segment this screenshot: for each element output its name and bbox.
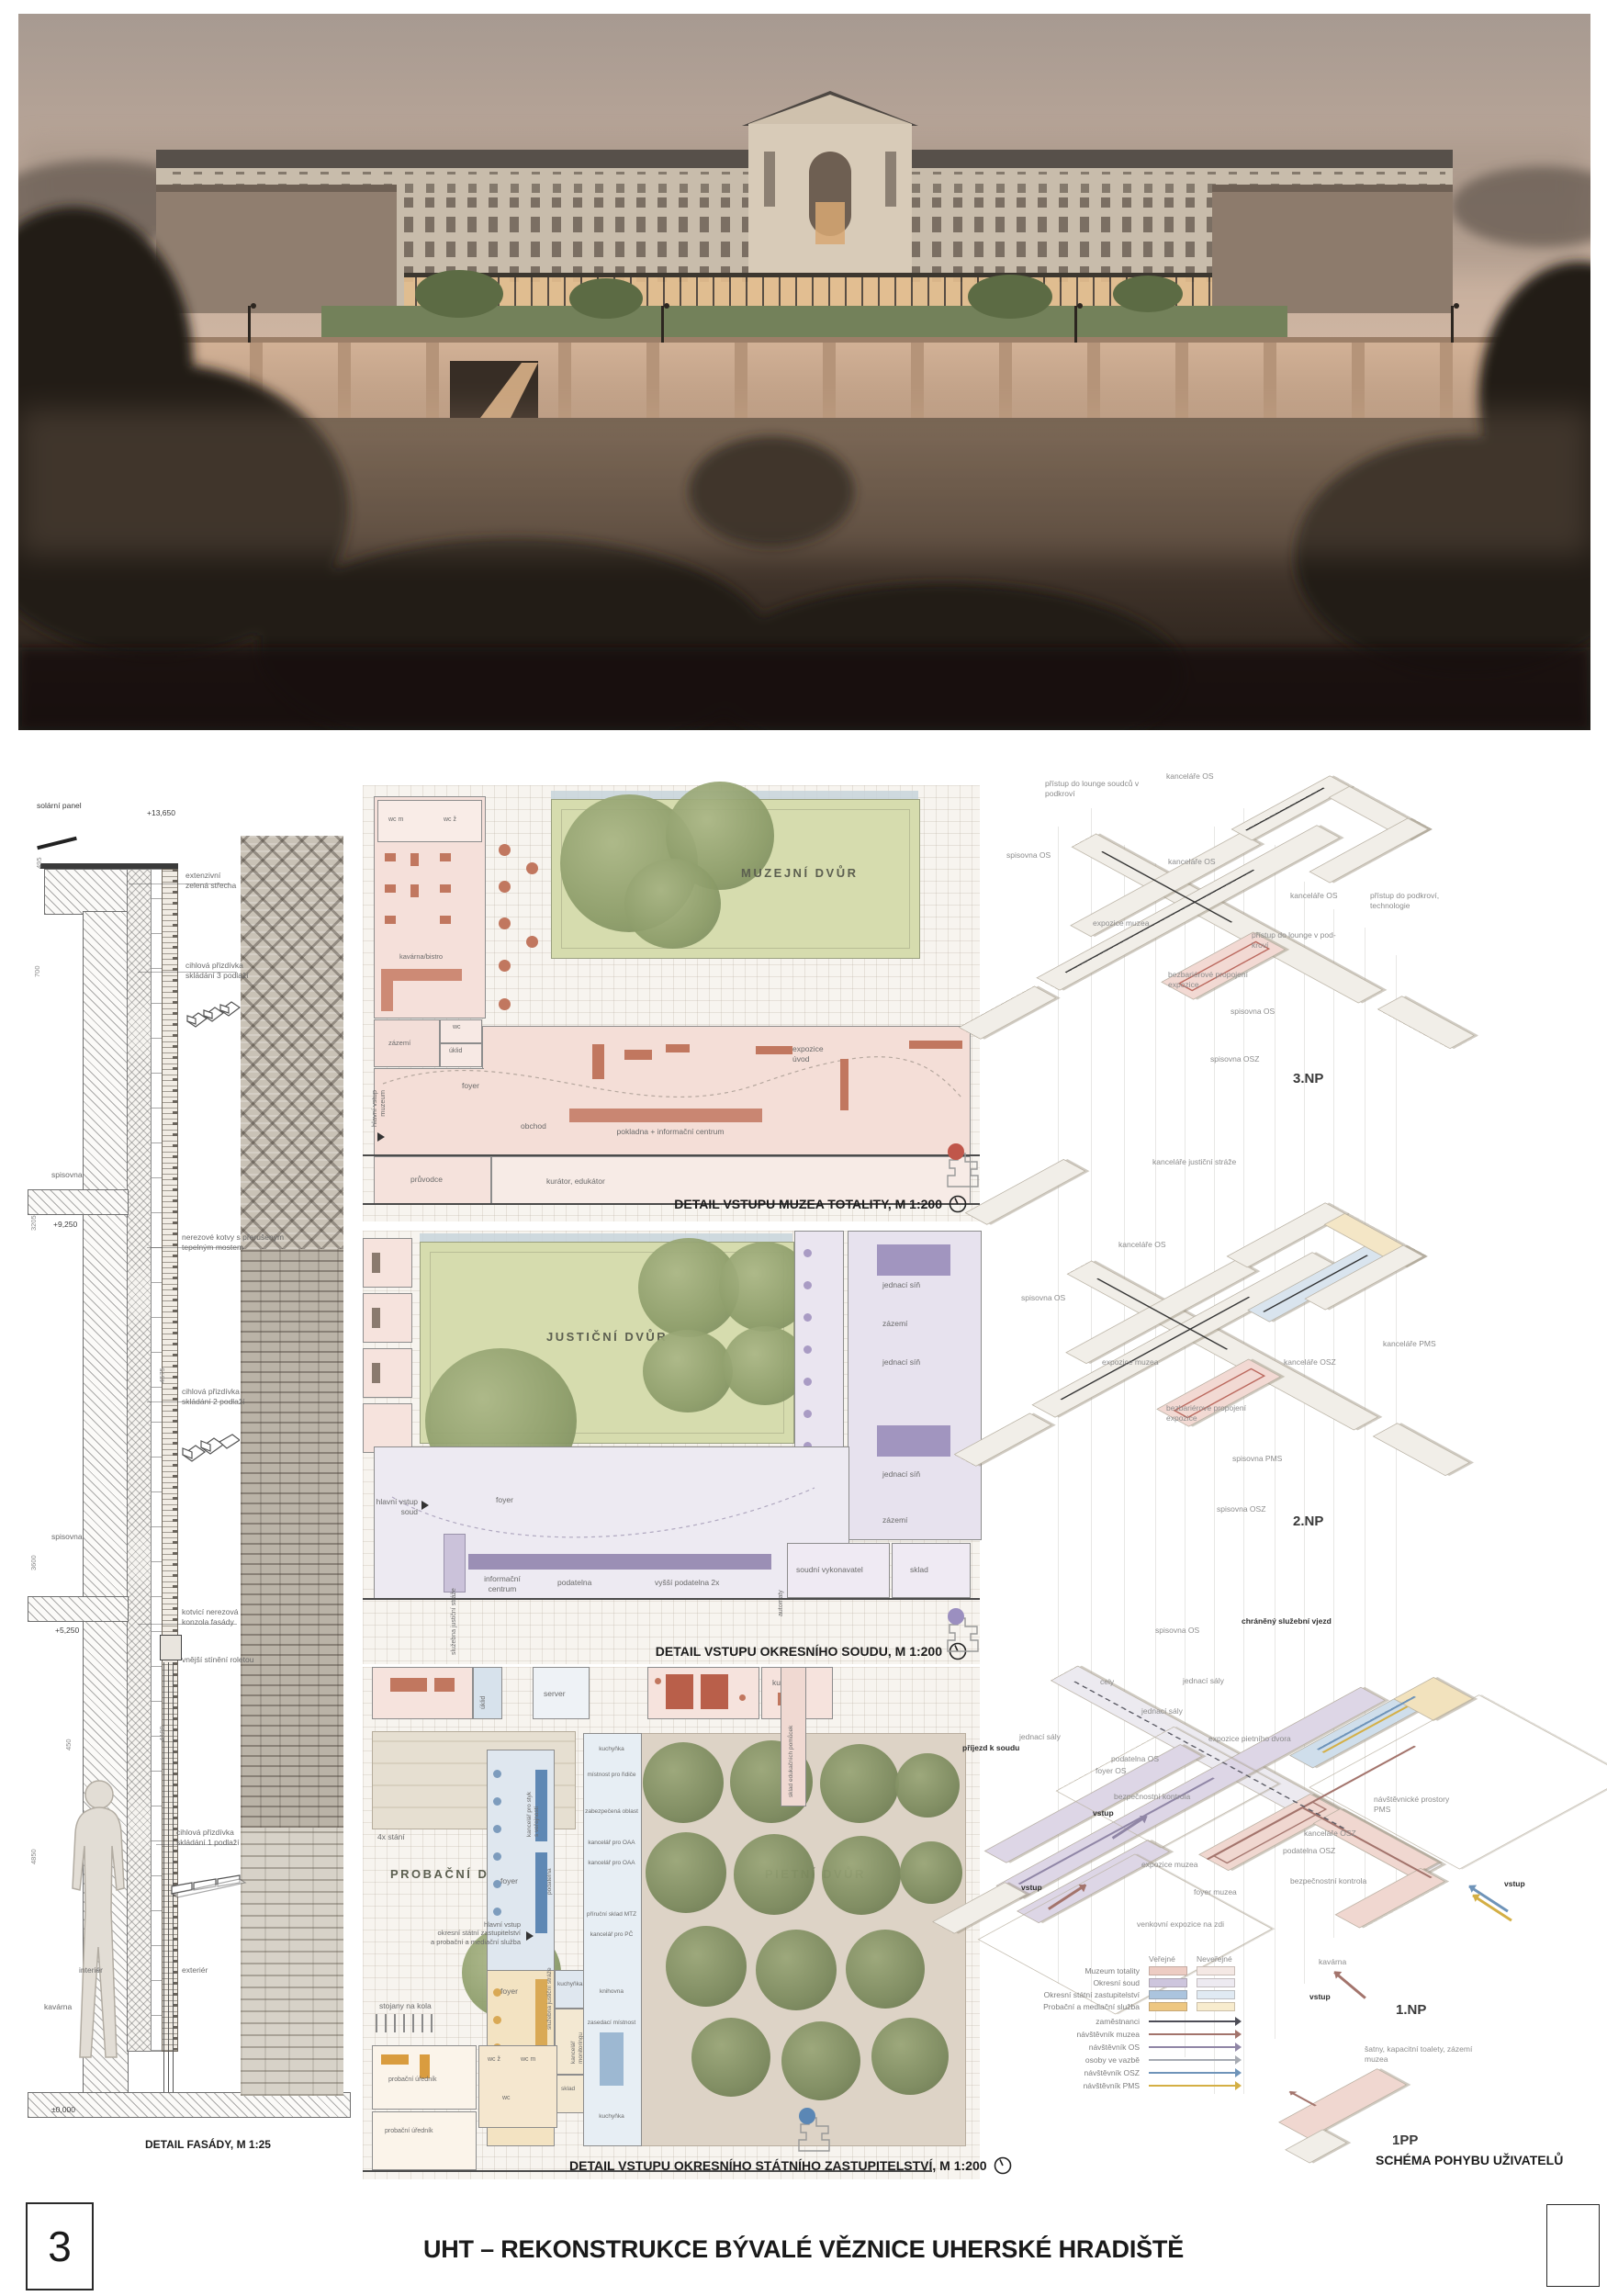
facade-label: exteriér (182, 1965, 208, 1975)
legend-program: Probační a mediační služba (976, 2002, 1140, 2011)
axon-label: expozice muzea (1093, 918, 1149, 929)
floor-slab (28, 1189, 129, 1215)
facade-label: solární panel (37, 801, 82, 811)
swatch (1197, 1966, 1235, 1975)
room-label: sklad edukačních pomůcek (788, 1726, 795, 1797)
footer-empty-box (1546, 2204, 1600, 2287)
facade-label: interiér (79, 1965, 103, 1975)
swatch (1197, 1978, 1235, 1987)
caption-text: SCHÉMA POHYBU UŽIVATELŮ (1376, 2153, 1563, 2167)
room-label: knihovna (584, 1988, 639, 1996)
hero-rendering (18, 14, 1590, 730)
bike-rack-icon (376, 2014, 434, 2032)
dimension: 4575 (158, 1367, 166, 1383)
room (892, 1543, 971, 1598)
room-label: jednací síň (882, 1280, 920, 1290)
room-label: wc m (388, 816, 403, 825)
flow-arrow-icon (1149, 2031, 1246, 2038)
axon-label: bezpečnostní kontrola (1290, 1876, 1366, 1886)
axon-label: návštěvnické prostory PMS (1374, 1795, 1449, 1815)
floor-slab (28, 1596, 129, 1622)
axon-wing (1309, 818, 1429, 884)
facade-parapet (44, 869, 130, 915)
entrance-label: hlavní vstup muzeum (370, 1090, 388, 1127)
room-label: foyer (462, 1081, 479, 1091)
axon-3np (1006, 798, 1447, 1039)
brick-texture-rough (241, 1249, 343, 1828)
facade-label: nerezové kotvy s přerušeným tepelným mos… (182, 1232, 284, 1252)
wall-line (363, 1154, 980, 1156)
room-label: kuchyňka (584, 1746, 639, 1753)
room-label: sklad (910, 1565, 928, 1575)
axon-label: přístup do lounge soudců v podkroví (1045, 779, 1139, 799)
plan-caption: DETAIL VSTUPU OKRESNÍHO SOUDU, M 1:200 (656, 1642, 967, 1660)
swatch (1149, 2002, 1187, 2011)
room-label: úklid (480, 1696, 489, 1709)
axon-label: bezbariérové propojení expozice (1168, 970, 1248, 990)
locator-icon-prosecution (795, 2105, 837, 2153)
axon-label: spisovna PMS (1232, 1454, 1282, 1464)
room-label: podatelna (557, 1578, 591, 1588)
dimension: 700 (33, 965, 41, 977)
room-label: 4x stání (377, 1832, 405, 1842)
facade-label: cihlová přizdívka skládání 1 podlaží (176, 1828, 240, 1847)
dimension: 4850 (29, 1849, 38, 1864)
room-label: probační úředník (385, 2128, 433, 2136)
room-label: wc ž (488, 2056, 500, 2065)
flow-arrow-icon (1149, 2069, 1246, 2077)
plan-caption: DETAIL VSTUPU OKRESNÍHO STÁTNÍHO ZASTUPI… (569, 2156, 1012, 2175)
brick-stack-2-icon (179, 1429, 240, 1469)
axon-label: spisovna OS (1231, 1007, 1275, 1017)
solar-panel-icon (37, 837, 77, 850)
room-label: kancelář pro OAA (584, 1840, 639, 1847)
room-label: zázemí (882, 1319, 907, 1329)
room-label: stojany na kola (379, 2001, 432, 2011)
axon-label: bezbariérové propojení expozice (1166, 1403, 1246, 1424)
vstup-label: vstup (1021, 1883, 1042, 1893)
ground-slab (28, 2092, 351, 2118)
dimension: 450 (64, 1739, 73, 1750)
entrance-arrow-icon (421, 1501, 433, 1510)
dimension: 3205 (29, 1215, 38, 1231)
swatch (1149, 1978, 1187, 1987)
level-label: +13,650 (147, 808, 175, 818)
blind-box (160, 1635, 182, 1660)
program-legend: Veřejné Neveřejné Muzeum totality Okresn… (976, 1954, 1235, 2011)
axon-wing (1373, 1423, 1470, 1476)
flow-arrow-icon (1149, 2056, 1246, 2064)
courtrooms-wing (848, 1231, 982, 1540)
axon-label: kanceláře OSZ (1284, 1357, 1336, 1367)
axon-label: cely (1100, 1677, 1114, 1687)
caption-text: DETAIL VSTUPU MUZEA TOTALITY, M 1:200 (674, 1197, 942, 1211)
axon-label: foyer muzea (1194, 1887, 1237, 1897)
axon-wing (1231, 775, 1351, 840)
room-label: server (544, 1689, 566, 1699)
axon-label: kanceláře OSZ (1304, 1829, 1356, 1839)
entrance-arrow-icon (526, 1931, 538, 1941)
axon-label: expozice muzea (1141, 1860, 1197, 1870)
entry-arrow (1288, 2091, 1316, 2107)
swatch (1149, 1990, 1187, 1999)
room-label: kuchyňka (584, 2113, 639, 2121)
facade-label: cihlová přizdívka skládání 2 podlaží (182, 1387, 245, 1406)
facade-label: vnější stínění roletou (182, 1655, 253, 1665)
dimension: 4100 (158, 1726, 166, 1741)
legend-program: Okresní státní zastupitelství (976, 1990, 1140, 1999)
room-label: příruční sklad MTZ (584, 1911, 639, 1919)
axon-label: spisovna OS (1155, 1626, 1199, 1636)
tree (624, 859, 721, 949)
room-label: foyer (500, 1986, 518, 1997)
legend-program: Muzeum totality (976, 1966, 1140, 1975)
axon-label: spisovna OSZ (1210, 1054, 1259, 1064)
legend-flow: zaměstnanci (976, 2017, 1140, 2026)
axon-label: podatelna OSZ (1283, 1846, 1335, 1856)
facade-caption: DETAIL FASÁDY, M 1:25 (145, 2138, 271, 2151)
axon-label: jednací sály (1183, 1676, 1224, 1686)
axon-label: venkovní expozice na zdi (1137, 1919, 1224, 1930)
legend-flow: návštěvník muzea (976, 2030, 1140, 2039)
legend-flow: návštěvník OSZ (976, 2068, 1140, 2077)
axon-label: příjezd k soudu (962, 1743, 1019, 1753)
room-label: automaty (778, 1590, 786, 1616)
caption-text: DETAIL VSTUPU OKRESNÍHO SOUDU, M 1:200 (656, 1644, 942, 1659)
axon-wing (1377, 996, 1475, 1049)
level-label: +5,250 (55, 1626, 79, 1636)
entrance-label: hlavní vstup okresní státní zastupitelst… (374, 1920, 521, 1946)
legend-header: Veřejné (1149, 1954, 1187, 1964)
courtyard-label: MUZEJNÍ DVŮR (741, 866, 859, 880)
facade-roof-slab (40, 863, 178, 869)
glazing-line (168, 1662, 169, 2092)
caption-text: DETAIL VSTUPU OKRESNÍHO STÁTNÍHO ZASTUPI… (569, 2158, 987, 2173)
facade-label: kotvicí nerezová konzola fasády (182, 1607, 238, 1626)
room-label: obchod (521, 1121, 546, 1131)
floor-tag: 1PP (1392, 2133, 1418, 2148)
room-label: probační úředník (388, 2077, 437, 2085)
cell-room (363, 1293, 412, 1343)
level-label: +9,250 (53, 1220, 77, 1230)
axon-label: foyer OS (1096, 1766, 1127, 1776)
axon-label: přístup do podkroví, technologie (1370, 891, 1439, 911)
room-label: pokladna + informační centrum (592, 1127, 748, 1137)
human-silhouette (62, 1774, 134, 2092)
facade-label: extenzivní zelená střecha (185, 871, 236, 890)
room (473, 1667, 502, 1719)
floor-tag: 3.NP (1293, 1071, 1323, 1086)
cell-room (363, 1238, 412, 1288)
brick-stack-3-icon (184, 997, 244, 1038)
axon-label: chráněný služební vjezd (1242, 1616, 1332, 1626)
facade-label: cihlová přizdívka skládání 3 podlaží (185, 961, 249, 980)
flow-legend: zaměstnanci návštěvník muzea návštěvník … (976, 2017, 1246, 2090)
axon-label: kanceláře PMS (1383, 1339, 1436, 1349)
axon-label: expozice pietního dvora (1208, 1734, 1291, 1744)
room-label: kancelář pro PČ (584, 1931, 639, 1939)
axon-label: kanceláře OS (1118, 1240, 1166, 1250)
cell-room (363, 1403, 412, 1453)
plan-museum: MUZEJNÍ DVŮR wc m wc ž kavárna/bistro zá… (363, 785, 980, 1221)
brick-texture-stone (241, 1828, 343, 2096)
axon-label: spisovna OSZ (1217, 1504, 1265, 1514)
room-label: foyer (496, 1495, 513, 1505)
hero-rendering-image (18, 14, 1590, 730)
room-label: zasedací místnost (584, 2020, 639, 2027)
brick-row-icon (170, 1874, 247, 1901)
room (372, 2111, 477, 2170)
axon-label: expozice muzea (1102, 1357, 1158, 1367)
axon-label: spisovna OS (1021, 1293, 1065, 1303)
axon-wing (1227, 1202, 1346, 1267)
room-label: zabezpečená oblast (584, 1808, 639, 1816)
room-label: místnost pro řidiče (584, 1772, 639, 1779)
room-label: expozice úvod (792, 1044, 824, 1064)
legend-flow: návštěvník OS (976, 2043, 1140, 2052)
board-title: UHT – REKONSTRUKCE BÝVALÉ VĚZNICE UHERSK… (0, 2235, 1607, 2264)
axon-2np (1001, 1225, 1443, 1466)
entry-arrow (1333, 1971, 1366, 1999)
room-label: průvodce (410, 1175, 443, 1185)
plan-prosecution: úklid server kuchyňka PIETNÍ DVŮR sklad … (363, 1667, 980, 2179)
caption-text: DETAIL FASÁDY, M 1:25 (145, 2138, 271, 2151)
legend-flow: osoby ve vazbě (976, 2055, 1140, 2065)
axon-label: jednací sály (1141, 1706, 1183, 1716)
room-label: kavárna (44, 2002, 72, 2012)
axon-label: jednací sály (1019, 1732, 1061, 1742)
legend-header: Neveřejné (1197, 1954, 1235, 1964)
courtyard-label: JUSTIČNÍ DVŮR (546, 1330, 668, 1344)
room-label: soudní vykonavatel (796, 1565, 863, 1575)
room-label: kavárna/bistro (399, 952, 443, 961)
swatch (1197, 2002, 1235, 2011)
room-label: wc (502, 2095, 511, 2103)
axon-label: kanceláře justiční stráže (1152, 1157, 1236, 1167)
locator-icon-court (944, 1605, 986, 1653)
room-label: wc ž (444, 816, 456, 825)
room-label: spisovna (51, 1532, 83, 1542)
dimension: 495 (35, 857, 43, 869)
axon-label: kanceláře OS (1290, 891, 1338, 901)
room (372, 1667, 473, 1719)
axon-label: podatelna OS (1111, 1754, 1159, 1764)
room-label: jednací síň (882, 1357, 920, 1367)
vstup-label: vstup (1309, 1992, 1331, 2002)
floor-tag: 1.NP (1396, 2002, 1426, 2018)
axon-label: kanceláře OS (1168, 857, 1216, 867)
room-label: zázemí (882, 1515, 907, 1525)
plan-caption: DETAIL VSTUPU MUZEA TOTALITY, M 1:200 (674, 1195, 967, 1213)
plan-court: JUSTIČNÍ DVŮR lounge jednací síň zázemí … (363, 1231, 980, 1664)
room-label: kancelář pro OAA (584, 1860, 639, 1867)
axon-label: šatny, kapacitní toalety, zázemí muzea (1365, 2044, 1472, 2065)
swatch (1197, 1990, 1235, 1999)
room-label: jednací síň (882, 1469, 920, 1480)
north-clock-icon (994, 2156, 1012, 2175)
room-label: kancelář pro styk s veřejností (526, 1792, 541, 1837)
legend-program: Okresní soud (976, 1978, 1140, 1987)
axon-wing-basement (1278, 2068, 1407, 2138)
axon-wing (1285, 2129, 1347, 2163)
axon-label: spisovna OS (1006, 850, 1051, 861)
axon-label: bezpečnostní kontrola (1114, 1792, 1190, 1802)
flow-arrow-icon (1149, 2043, 1246, 2051)
room-label: kurátor, edukátor (546, 1176, 605, 1187)
axon-label: přístup do lounge v pod- kroví (1252, 930, 1336, 951)
north-clock-icon (949, 1195, 967, 1213)
room-label: informační centrum (475, 1574, 530, 1593)
guard-room (444, 1534, 466, 1593)
flow-arrow-icon (1149, 2018, 1246, 2025)
room-label: wc m (521, 2056, 535, 2065)
room-label: sklad (561, 2086, 575, 2093)
circulation-arrow (1245, 788, 1324, 831)
presentation-board: solární panel +13,650 extenzivní zelená … (0, 0, 1607, 2296)
vstup-label: vstup (1504, 1879, 1525, 1889)
flow-arrow-icon (1149, 2082, 1246, 2089)
entrance-label: hlavní vstup soud (370, 1497, 418, 1516)
locator-icon-museum (944, 1141, 986, 1188)
level-label: ±0,000 (51, 2105, 75, 2115)
vstup-label: vstup (1093, 1808, 1114, 1818)
floor-tag: 2.NP (1293, 1514, 1323, 1529)
brick-texture-diamond (241, 836, 343, 1249)
swatch (1149, 1966, 1187, 1975)
room-label: spisovna (51, 1170, 83, 1180)
room-label: podatelna (546, 1868, 554, 1895)
legend-flow: návštěvník PMS (976, 2081, 1140, 2090)
room-label: foyer (500, 1876, 518, 1886)
entrance-arrow-icon (377, 1132, 389, 1142)
room-label: služebna justiční stráže (546, 1967, 554, 2030)
room-label: vyšší podatelna 2x (655, 1578, 719, 1588)
axon-caption: SCHÉMA POHYBU UŽIVATELŮ (1376, 2153, 1563, 2167)
cell-room (363, 1348, 412, 1398)
dimension: 3600 (29, 1555, 38, 1570)
wall-line (363, 1598, 980, 1600)
room-label: kuchyňka (557, 1981, 582, 1988)
facade-detail: solární panel +13,650 extenzivní zelená … (28, 781, 363, 2177)
tree (643, 1330, 733, 1412)
canopy (420, 1233, 792, 1242)
axon-label: kanceláře OS (1166, 771, 1214, 782)
